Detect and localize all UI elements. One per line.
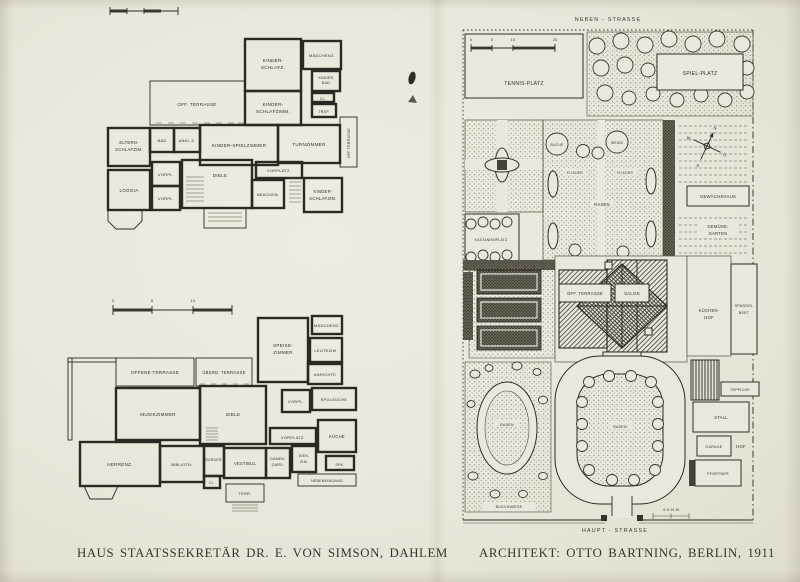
- label-buschwiese: BUSCHWIESE: [496, 505, 523, 509]
- label-off-terrasse: OFF. TERRASSE: [177, 102, 216, 107]
- house: OFF. TERRASSE SALON: [555, 256, 687, 362]
- label-stall: STALL: [714, 415, 728, 420]
- label-ankl-z: ANKL.Z.: [179, 138, 196, 143]
- label-kinder-spielzimmer: KINDER-SPIELZIMMER: [212, 143, 267, 148]
- label-haupt-strasse: HAUPT - STRASSE: [582, 528, 648, 534]
- spargel-beet: [731, 264, 757, 354]
- room-dien-zim: [292, 446, 316, 472]
- label-trep: TREP.: [318, 110, 329, 114]
- label-kueche: KÜCHE: [329, 434, 345, 439]
- label-speise-2: ZIMMER: [273, 350, 293, 355]
- caption-architect: ARCHITEKT: OTTO BARTNING, BERLIN, 1911: [479, 546, 775, 561]
- label-kinder-schlafzim2-1: KINDER-: [314, 189, 333, 194]
- label-gewaechshaus: GEWÄCHSHAUS: [700, 194, 736, 199]
- label-diele: DIELE: [213, 173, 228, 178]
- drive-loop: RASEN: [555, 356, 685, 518]
- compass-s: S: [695, 163, 700, 169]
- bed-1: [477, 270, 541, 294]
- label-neben-strasse: NEBEN - STRASSE: [575, 17, 642, 23]
- site-scale-0: 0: [470, 38, 472, 42]
- label-kinder-bad-2: BAD: [322, 81, 330, 85]
- gate-drive: [612, 496, 632, 518]
- label-dien-zim-2: ZIM.: [300, 460, 308, 464]
- compass-e: O: [722, 152, 728, 158]
- service-yard: KÜCHEN- HOF SPARGEL BEET TEPPICHE STALL …: [687, 256, 759, 486]
- site-scale-5: 5: [491, 38, 493, 42]
- label-kinder-bad-1: KINDER: [318, 76, 333, 80]
- vegetable-garden: GEWÄCHSHAUS GEMÜSE- GARTEN: [679, 126, 749, 253]
- floor-plan-upper: KINDER- SCHLAFZ. MÄDCHENZ. KINDER BAD CL…: [100, 25, 365, 240]
- label-g-diele: DIELE: [226, 412, 241, 417]
- label-cl: CL.: [320, 97, 326, 101]
- label-kuechen-hof-2: HOF: [704, 315, 714, 320]
- label-house-off-terrasse: OFF. TERRASSE: [567, 291, 603, 296]
- site-scale-10: 10: [511, 38, 516, 42]
- label-spiel-platz: SPIEL-PLATZ: [683, 71, 718, 77]
- label-rasen-sw: RASEN: [500, 423, 514, 427]
- label-spargel-2: BEET: [739, 311, 750, 315]
- label-teppiche: TEPPICHE: [730, 388, 750, 392]
- site-scale-20: 20: [553, 38, 558, 42]
- label-garder: GARDER.: [205, 458, 222, 462]
- label-eltern-schlafzim-1: ELTERN-: [119, 140, 139, 145]
- label-herrenz: HERRENZ.: [107, 462, 132, 467]
- ground-scale-bar: 0 5 10: [112, 298, 232, 315]
- label-spk: SPK.: [335, 463, 344, 467]
- scanned-plan-page: { "page": { "caption_left": "HAUS STAATS…: [0, 0, 800, 582]
- site-plan: 0 5 10 20 TENNIS-PLATZ SPIEL-PLATZ: [455, 8, 765, 538]
- label-dien-zim-1: DIEN.: [299, 454, 310, 458]
- label-g-cl: CL.: [209, 481, 215, 485]
- label-leutezim: LEUTEZIM.: [314, 348, 337, 353]
- label-gemuese-1: GEMÜSE-: [707, 224, 729, 229]
- label-speise-1: SPEISE-: [273, 343, 293, 348]
- wood-stack: [691, 360, 719, 400]
- label-terr: TERR.: [238, 491, 251, 496]
- orchard: SPIEL-PLATZ: [587, 31, 754, 116]
- label-maedchzim: MÄDCHZIM.: [257, 193, 280, 197]
- pergola-side: [68, 358, 72, 440]
- pergola-top: [68, 358, 116, 362]
- label-eltern-schlafzim-2: SCHLAFZIM.: [115, 147, 142, 152]
- label-nebeneingang: NEBENEINGANG: [311, 479, 343, 483]
- label-pfoertner: PFÖRTNER: [707, 472, 729, 476]
- label-off-terrasse-vert: OFF.TERRASSE: [347, 128, 351, 159]
- ink-smudge: [400, 66, 426, 126]
- label-kinder-schlafzimm-1: KINDER-: [263, 102, 284, 107]
- central-garden: BUCHE WEIDE FLIEDER FLIEDER RASEN: [543, 120, 663, 260]
- label-flieder-1: FLIEDER: [567, 171, 583, 175]
- west-beds: [469, 266, 555, 358]
- label-kinder-schlafzimm-2: SCHLAFZIMM.: [256, 109, 290, 114]
- ground-scale-10: 10: [191, 298, 196, 303]
- label-maedchenz: MÄDCHENZ.: [309, 53, 335, 58]
- label-gemuese-2: GARTEN: [709, 231, 728, 236]
- label-garage: GARAGE: [706, 445, 723, 449]
- label-offene-terrasse: OFFENE TERRASSE: [131, 370, 179, 375]
- ground-scale-0: 0: [112, 298, 115, 303]
- label-weide: WEIDE: [611, 141, 624, 145]
- ground-plan-walls: [68, 316, 356, 502]
- southwest-garden: RASEN BUSCHWIESE: [465, 362, 551, 512]
- label-damen-gard-1: DAMEN-: [270, 457, 286, 461]
- bed-2: [477, 298, 541, 322]
- label-kinder-schlafz-1: KINDER-: [263, 58, 284, 63]
- label-vorpl-1: VORPL.: [158, 172, 174, 177]
- label-kuechen-hof-1: KÜCHEN-: [699, 308, 720, 313]
- label-buche: BUCHE: [550, 143, 564, 147]
- herrenz-bay: [84, 486, 118, 499]
- room-kinder-schlafzimm: [245, 91, 301, 125]
- label-g-vorpl: VORPL.: [288, 399, 304, 404]
- bed-3: [477, 326, 541, 350]
- label-bad: BAD: [158, 138, 167, 143]
- formal-garden: [465, 120, 543, 212]
- label-kinder-schlafzim2-2: SCHLAFZIM.: [309, 196, 336, 201]
- label-vorplatz: VORPLATZ.: [267, 168, 291, 173]
- label-hof: HOF: [736, 444, 746, 449]
- label-rasen-drive: RASEN: [613, 425, 627, 429]
- label-g-vorplatz: VORPLATZ.: [281, 435, 305, 440]
- label-turnzimmer: TURNZIMMER: [292, 142, 326, 147]
- label-rasen-center: RASEN: [594, 202, 610, 207]
- label-spuelkueche: SPÜLKÜCHE: [321, 397, 348, 402]
- entrance-terrace: [204, 208, 246, 228]
- label-spargel-1: SPARGEL: [735, 304, 753, 308]
- label-flieder-2: FLIEDER: [617, 171, 633, 175]
- label-tennis-platz: TENNIS-PLATZ: [504, 81, 544, 87]
- label-loggia: LOGGIA: [119, 188, 139, 193]
- scale-bar-mini-marks: [110, 7, 178, 15]
- room-kinder-schlafzim-2: [304, 178, 342, 212]
- loggia-bay: [108, 210, 142, 229]
- ink-smudge-marks: [407, 71, 417, 103]
- caption-title: HAUS STAATSSEKRETÄR DR. E. VON SIMSON, D…: [77, 546, 448, 561]
- label-kinder-schlafz-2: SCHLAFZ.: [261, 65, 285, 70]
- label-ueberd-terrasse: ÜBERD. TERRASSE: [202, 370, 245, 375]
- label-damen-gard-2: GARD.: [272, 463, 285, 467]
- tennis-court: 0 5 10 20 TENNIS-PLATZ: [465, 34, 583, 98]
- floor-plan-ground: 0 5 10 MÄDCHENZ. SPEI: [60, 288, 375, 518]
- label-bibliothek: BIBLIOTH.: [171, 462, 193, 467]
- label-scale-note: 0·5·10 M: [663, 508, 679, 512]
- ground-plan-details: [120, 358, 258, 511]
- label-anrichte: ANRICHTE: [314, 372, 337, 377]
- scale-bar-mini: [106, 3, 186, 17]
- label-g-maedchenz: MÄDCHENZ.: [314, 323, 340, 328]
- ground-scale-5: 5: [151, 298, 154, 303]
- label-vestibul: VESTIBUL: [234, 461, 257, 466]
- label-vorpl-2: VORPL.: [158, 196, 174, 201]
- label-salon: SALON: [624, 291, 639, 296]
- label-musikzimmer: MUSIKZIMMER: [140, 412, 176, 417]
- label-kastanienplatz: KASTANIENPLATZ: [475, 238, 508, 242]
